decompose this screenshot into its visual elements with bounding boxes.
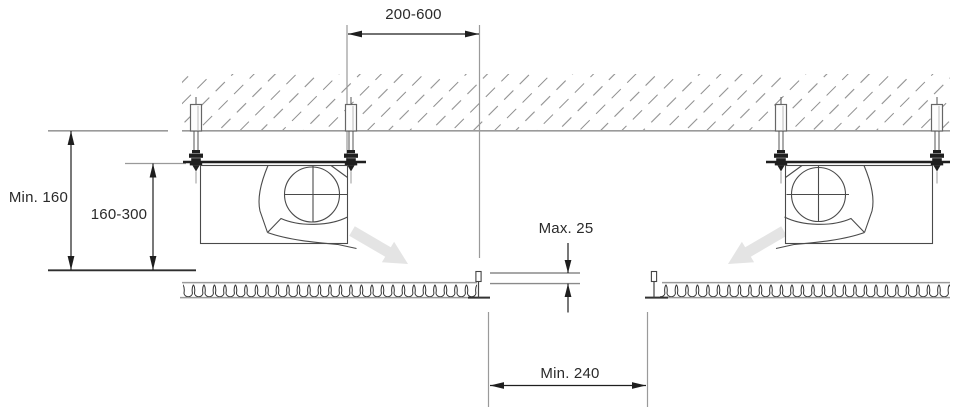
panel-edge-clip-right (651, 272, 656, 298)
ceiling-slab-hatch (182, 74, 950, 131)
dim-label-panel-lip-max: Max. 25 (518, 220, 614, 237)
dim-label-ceiling-void-min: Min. 160 (0, 189, 68, 206)
fan-unit-left (201, 166, 357, 249)
dim-label-opening-min-width: Min. 240 (508, 365, 632, 382)
dim-opening-width (490, 382, 646, 389)
installation-diagram: 200-600 Min. 160 160-300 Max. 25 Min. 24… (0, 0, 973, 414)
dim-panel-lip (565, 243, 572, 313)
suspended-panel-left (180, 272, 490, 298)
dim-label-suspension-range: 160-300 (87, 206, 151, 223)
panel-lip-reference-lines (490, 273, 580, 284)
airflow-arrow-left (349, 226, 408, 264)
suspended-panel-right (645, 272, 950, 298)
dim-hanger-spacing (348, 31, 479, 38)
dim-ceiling-void (68, 131, 75, 270)
dim-label-hanger-spacing: 200-600 (348, 6, 479, 23)
airflow-arrow-right (728, 226, 787, 264)
fan-unit-right (776, 166, 933, 249)
